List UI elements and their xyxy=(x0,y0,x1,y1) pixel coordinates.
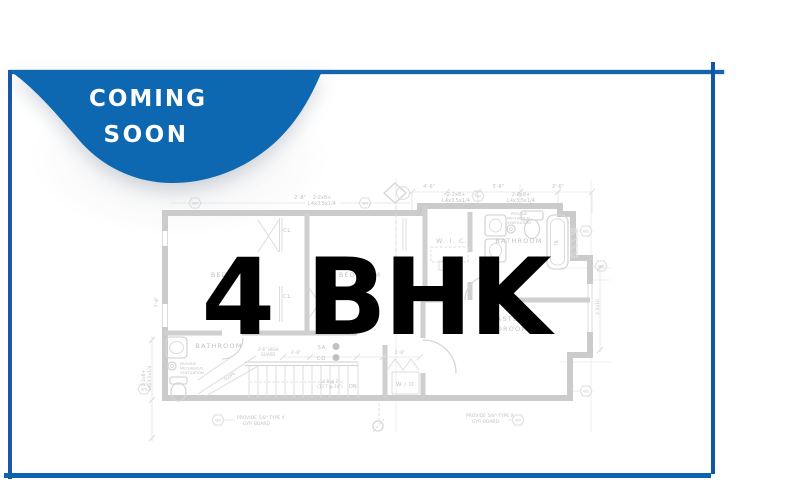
svg-text:GYP. BOARD: GYP. BOARD xyxy=(472,419,500,425)
gyp-note-left: PROVIDE 5/8" TYPE X xyxy=(237,415,285,421)
property-card[interactable]: SLOPE TB xyxy=(0,0,800,500)
svg-text:L4x3.5x1/4: L4x3.5x1/4 xyxy=(308,201,336,207)
svg-text:MECHANICAL: MECHANICAL xyxy=(507,217,531,221)
closet-label: CL xyxy=(283,228,291,234)
svg-text:VENTILATION: VENTILATION xyxy=(180,371,204,375)
unit-type-headline: 4 BHK xyxy=(140,240,610,355)
frame-bottom-line xyxy=(4,473,711,478)
frame-right-line xyxy=(711,62,715,474)
svg-text:GYP. BOARD: GYP. BOARD xyxy=(243,421,271,427)
svg-text:L4x3.5x1/4: L4x3.5x1/4 xyxy=(147,365,153,390)
slope-label: SLOPE xyxy=(223,370,237,381)
w3-tag: W3 xyxy=(583,390,589,394)
w3-tag: W3 xyxy=(141,388,147,392)
coming-soon-badge: COMING SOON xyxy=(6,68,326,188)
room-label-wd: W / D xyxy=(396,382,414,388)
badge-line1: COMING xyxy=(89,86,207,112)
shear-tag-diamond xyxy=(384,183,406,203)
dim-label: 2'-6" xyxy=(552,184,564,190)
vent-note-bottom: PROVIDE xyxy=(180,362,197,366)
w3-tag: W3 xyxy=(362,202,368,206)
vent-fan-bottom xyxy=(168,362,176,370)
dim-label: 4'-6" xyxy=(423,184,435,190)
wd-louver-door xyxy=(387,359,419,370)
dim-label: 2'-8" xyxy=(294,195,306,201)
vent-note-top: PROVIDE xyxy=(511,212,528,216)
badge-line2: SOON xyxy=(104,122,189,148)
beam-note-left: 2-2x8+ xyxy=(141,369,147,386)
svg-text:VENTILATION: VENTILATION xyxy=(507,221,531,225)
w3-tag: W3 xyxy=(583,230,589,234)
w3-tag: W3 xyxy=(515,419,521,423)
svg-text:L4x3.5x1/4: L4x3.5x1/4 xyxy=(442,198,470,204)
w3-tag: W3 xyxy=(215,419,221,423)
vanity-top xyxy=(485,215,506,236)
plan-stairs: SLOPE xyxy=(198,356,358,398)
down-label: DN xyxy=(349,384,357,390)
gyp-note-right: PROVIDE 5/8" TYPE X xyxy=(466,413,514,419)
dim-label: 3'-6" xyxy=(492,184,504,190)
svg-text:MECHANICAL: MECHANICAL xyxy=(180,367,204,371)
svg-text:L4x3.5x1/4: L4x3.5x1/4 xyxy=(507,198,535,204)
w3-tag: W3 xyxy=(475,195,481,199)
svg-text:(13 T @ 10"): (13 T @ 10") xyxy=(317,384,343,389)
vent-fan-top xyxy=(507,225,515,233)
w3-tag: W3 xyxy=(192,202,198,206)
